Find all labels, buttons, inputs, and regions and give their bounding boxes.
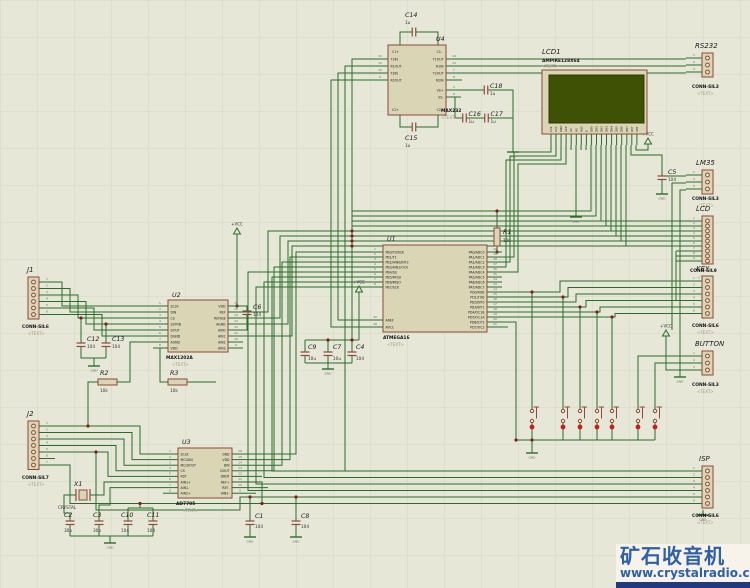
svg-text:8: 8: [169, 488, 171, 492]
svg-text:8: 8: [453, 75, 455, 79]
lcd-screen: [549, 75, 644, 123]
svg-text:R2: R2: [100, 370, 108, 377]
svg-text:CONN-SIL3: CONN-SIL3: [692, 196, 719, 202]
svg-text:8: 8: [693, 251, 695, 255]
connector-pin: [706, 354, 710, 358]
svg-text:10: 10: [238, 483, 242, 487]
svg-text:DGND: DGND: [171, 334, 181, 338]
svg-text:104: 104: [121, 528, 129, 533]
svg-text:C9: C9: [308, 344, 316, 351]
connector-pin: [706, 259, 710, 263]
svg-text:PD5/OC1A: PD5/OC1A: [468, 315, 485, 319]
svg-text:C13: C13: [112, 336, 124, 343]
resistor-body[interactable]: [168, 379, 187, 385]
svg-text:LCD1: LCD1: [542, 48, 561, 56]
connector-pin: [706, 239, 710, 243]
svg-text:6: 6: [159, 331, 161, 335]
svg-text:11: 11: [378, 54, 382, 58]
svg-text:AIN2-: AIN2-: [221, 492, 230, 496]
svg-text:E: E: [584, 130, 588, 132]
connector-pin: [706, 229, 710, 233]
connector-pin: [706, 312, 710, 316]
svg-text:J2: J2: [25, 410, 34, 418]
junction-dot: [495, 209, 498, 212]
svg-text:C5: C5: [668, 169, 676, 176]
svg-text:R3: R3: [170, 370, 178, 377]
svg-text:16: 16: [238, 449, 242, 453]
svg-text:C2+: C2+: [392, 108, 399, 112]
svg-text:ATMEGA16: ATMEGA16: [383, 335, 410, 341]
svg-text:9: 9: [379, 75, 381, 79]
svg-text:1: 1: [46, 277, 48, 281]
svg-text:AIN1+: AIN1+: [181, 480, 192, 484]
resistor-body[interactable]: [494, 228, 500, 246]
button-terminal: [530, 419, 533, 422]
svg-text:PD1/TXD: PD1/TXD: [470, 295, 485, 299]
connector-pin: [32, 444, 36, 448]
connector-pin: [32, 306, 36, 310]
button-terminal: [636, 419, 639, 422]
svg-text:MAX232: MAX232: [441, 108, 461, 114]
svg-text:7: 7: [453, 68, 455, 72]
svg-text:DB3: DB3: [605, 126, 609, 132]
button-junction-dot: [595, 425, 600, 430]
watermark: 矿石收音机 www.crystalradio.cn: [616, 544, 750, 588]
svg-text:30p: 30p: [93, 528, 101, 533]
svg-text:5: 5: [693, 302, 695, 306]
svg-text:<TEXT>: <TEXT>: [28, 482, 45, 487]
svg-text:1u: 1u: [491, 119, 497, 124]
svg-text:104: 104: [668, 177, 676, 182]
svg-text:C10: C10: [121, 512, 133, 519]
connector-pin: [706, 469, 710, 473]
svg-text:GND: GND: [677, 380, 685, 384]
svg-text:PB7/SCK: PB7/SCK: [386, 285, 400, 289]
svg-text:10: 10: [234, 337, 238, 341]
svg-text:RS232: RS232: [695, 42, 718, 50]
svg-text:R/W: R/W: [579, 126, 583, 132]
svg-text:C1-: C1-: [437, 50, 442, 54]
junction-dot: [94, 450, 97, 453]
svg-text:7: 7: [693, 246, 695, 250]
svg-text:C16: C16: [469, 111, 481, 118]
connector-pin: [32, 437, 36, 441]
svg-text:GND: GND: [222, 452, 230, 456]
svg-text:<TEXT>: <TEXT>: [697, 330, 714, 335]
connector-pin: [32, 313, 36, 317]
svg-text:4: 4: [693, 296, 695, 300]
svg-text:DIN: DIN: [171, 310, 177, 314]
svg-text:3: 3: [693, 365, 695, 369]
svg-text:MAX1202A: MAX1202A: [166, 355, 193, 361]
svg-text:1: 1: [693, 216, 695, 220]
svg-text:2: 2: [693, 221, 695, 225]
svg-text:AGND: AGND: [216, 322, 226, 326]
schematic: GNDGNDGNDGNDGNDGNDGNDGNDGNDGNDGND+VCC+VC…: [0, 0, 750, 588]
svg-text:6: 6: [169, 477, 171, 481]
svg-text:7: 7: [169, 483, 171, 487]
svg-text:4: 4: [46, 297, 48, 301]
svg-text:C8: C8: [301, 513, 309, 520]
button-junction-dot: [530, 425, 535, 430]
button-terminal: [610, 409, 613, 412]
svg-text:VCC: VCC: [564, 126, 568, 132]
junction-dot: [350, 239, 353, 242]
svg-text:2: 2: [693, 60, 695, 64]
svg-text:4: 4: [159, 319, 161, 323]
connector-pin: [706, 56, 710, 60]
svg-text:6: 6: [374, 272, 376, 276]
svg-text:RST: RST: [181, 475, 187, 479]
svg-text:14: 14: [493, 287, 497, 291]
svg-text:PA7/ADC7: PA7/ADC7: [469, 285, 485, 289]
svg-text:GND: GND: [529, 456, 537, 460]
svg-text:4: 4: [693, 486, 695, 490]
svg-text:10k: 10k: [503, 238, 511, 243]
svg-text:PB4/SS: PB4/SS: [386, 270, 397, 274]
svg-text:VDD: VDD: [171, 346, 179, 350]
svg-text:SCLK: SCLK: [171, 304, 180, 308]
svg-text:AIN0: AIN0: [218, 328, 226, 332]
svg-text:U4: U4: [436, 36, 445, 43]
svg-text:SCLK: SCLK: [181, 452, 190, 456]
svg-text:1: 1: [693, 170, 695, 174]
svg-text:7: 7: [374, 277, 376, 281]
svg-text:PA1/ADC1: PA1/ADC1: [469, 255, 485, 259]
crystal-body[interactable]: [79, 490, 87, 500]
svg-text:T1OUT: T1OUT: [432, 57, 444, 61]
svg-text:19: 19: [493, 312, 497, 316]
svg-text:KEY: KEY: [696, 265, 710, 273]
svg-text:VDD: VDD: [218, 304, 226, 308]
svg-text:PD2/INT0: PD2/INT0: [470, 300, 485, 304]
junction-dot: [350, 338, 353, 341]
connector-pin: [706, 187, 710, 191]
button-terminal: [595, 419, 598, 422]
connector-pin: [32, 431, 36, 435]
svg-text:PB6/MISO: PB6/MISO: [386, 280, 402, 284]
svg-text:R2IN: R2IN: [436, 78, 444, 82]
svg-text:6: 6: [46, 310, 48, 314]
junction-dot: [530, 438, 533, 441]
svg-text:15: 15: [493, 292, 497, 296]
schematic-canvas: GNDGNDGNDGNDGNDGNDGNDGNDGNDGNDGND+VCC+VC…: [0, 0, 750, 588]
svg-text:C1: C1: [255, 513, 263, 520]
svg-text:6: 6: [46, 454, 48, 458]
svg-text:REFADJ: REFADJ: [214, 316, 225, 320]
svg-text:DB5: DB5: [615, 126, 619, 132]
svg-text:17: 17: [493, 302, 497, 306]
svg-text:C17: C17: [491, 111, 503, 118]
svg-text:AIN2+: AIN2+: [181, 492, 192, 496]
svg-text:AREF: AREF: [386, 318, 394, 322]
svg-text:14: 14: [234, 313, 238, 317]
svg-text:6: 6: [453, 92, 455, 96]
svg-text:VDD: VDD: [222, 458, 230, 462]
svg-text:DB1: DB1: [595, 126, 599, 132]
svg-text:<TEXT>: <TEXT>: [697, 520, 714, 525]
svg-text:PA2/ADC2: PA2/ADC2: [469, 260, 485, 264]
svg-text:PB3/AIN1/OC0: PB3/AIN1/OC0: [386, 265, 409, 269]
button-terminal: [561, 419, 564, 422]
svg-text:DB0: DB0: [589, 126, 593, 132]
junction-dot: [86, 424, 89, 427]
svg-text:+VCC: +VCC: [231, 222, 243, 227]
svg-text:DIN: DIN: [224, 464, 230, 468]
svg-text:DRDY: DRDY: [221, 475, 230, 479]
junction-dot: [350, 244, 353, 247]
svg-text:CONN-SIL3: CONN-SIL3: [692, 84, 719, 90]
connector-pin: [32, 280, 36, 284]
svg-text:104: 104: [112, 344, 120, 349]
button-junction-dot: [636, 425, 641, 430]
svg-text:1: 1: [693, 276, 695, 280]
svg-text:7: 7: [46, 460, 48, 464]
button-terminal: [653, 409, 656, 412]
svg-text:RST: RST: [630, 126, 634, 132]
svg-text:<TEXT>: <TEXT>: [182, 508, 199, 513]
svg-text:3: 3: [46, 434, 48, 438]
svg-text:PB2/AIN0/INT2: PB2/AIN0/INT2: [386, 260, 409, 264]
junction-dot: [294, 495, 297, 498]
svg-text:39: 39: [493, 252, 497, 256]
svg-text:20: 20: [493, 317, 497, 321]
connector-pin: [706, 180, 710, 184]
svg-text:34: 34: [493, 277, 497, 281]
connector-pin: [706, 292, 710, 296]
svg-text:DOUT: DOUT: [171, 328, 180, 332]
svg-text:10u: 10u: [308, 356, 316, 361]
svg-text:AIN1: AIN1: [218, 334, 226, 338]
svg-text:1u: 1u: [405, 20, 411, 25]
svg-text:R2OUT: R2OUT: [391, 78, 402, 82]
svg-text:3: 3: [374, 257, 376, 261]
svg-text:LCD: LCD: [696, 205, 711, 213]
svg-text:2: 2: [159, 307, 161, 311]
svg-text:CS1: CS1: [549, 126, 553, 132]
watermark-url: www.crystalradio.cn: [616, 567, 750, 580]
button-junction-dot: [561, 425, 566, 430]
svg-text:C1+: C1+: [392, 50, 399, 54]
svg-text:GND: GND: [325, 372, 333, 376]
svg-text:GND: GND: [573, 220, 581, 224]
svg-text:4: 4: [169, 466, 171, 470]
svg-text:1u: 1u: [469, 119, 475, 124]
connector-pin: [706, 249, 710, 253]
svg-text:GND: GND: [659, 197, 667, 201]
svg-text:104: 104: [253, 312, 261, 317]
junction-dot: [561, 295, 564, 298]
svg-text:DOUT: DOUT: [220, 469, 229, 473]
svg-text:CS: CS: [181, 469, 185, 473]
svg-text:<TEXT>: <TEXT>: [387, 342, 404, 347]
svg-text:2: 2: [46, 428, 48, 432]
svg-text:PA4/ADC4: PA4/ADC4: [469, 270, 485, 274]
svg-text:+VCC: +VCC: [660, 324, 672, 329]
junction-dot: [350, 234, 353, 237]
svg-text:PD3/INT1: PD3/INT1: [470, 305, 485, 309]
junction-dot: [595, 310, 598, 313]
svg-text:V0: V0: [569, 128, 573, 132]
svg-text:1u: 1u: [490, 91, 496, 96]
svg-text:1: 1: [693, 466, 695, 470]
svg-text:<TEXT>: <TEXT>: [28, 331, 45, 336]
junction-dot: [350, 229, 353, 232]
junction-dot: [326, 338, 329, 341]
svg-text:PA0/ADC0: PA0/ADC0: [469, 250, 485, 254]
junction-dot: [248, 495, 251, 498]
svg-text:2: 2: [169, 455, 171, 459]
connector-pin: [706, 299, 710, 303]
svg-text:REF: REF: [219, 310, 225, 314]
connector-pin: [706, 254, 710, 258]
junction-dot: [104, 322, 107, 325]
svg-text:J1: J1: [25, 266, 34, 274]
svg-text:104: 104: [301, 524, 309, 529]
svg-text:104: 104: [356, 356, 364, 361]
svg-text:14: 14: [238, 460, 242, 464]
svg-text:RS: RS: [574, 128, 578, 132]
svg-text:X1: X1: [73, 481, 82, 488]
svg-text:C6: C6: [253, 304, 261, 311]
svg-text:5: 5: [693, 492, 695, 496]
button-terminal: [578, 419, 581, 422]
svg-text:2: 2: [693, 283, 695, 287]
junction-dot: [514, 438, 517, 441]
svg-text:3: 3: [693, 226, 695, 230]
svg-text:U1: U1: [387, 236, 396, 243]
svg-text:GND: GND: [559, 126, 563, 132]
svg-text:2: 2: [374, 252, 376, 256]
svg-text:U2: U2: [172, 292, 181, 299]
svg-text:REF-: REF-: [222, 486, 229, 490]
svg-text:GND: GND: [91, 369, 99, 373]
svg-text:R1OUT: R1OUT: [391, 64, 402, 68]
svg-text:CONN-SIL6: CONN-SIL6: [692, 323, 719, 329]
svg-text:12: 12: [238, 472, 242, 476]
button-junction-dot: [653, 425, 658, 430]
svg-text:32: 32: [373, 315, 377, 319]
connector-pin: [706, 244, 710, 248]
svg-text:C4: C4: [356, 344, 364, 351]
svg-text:2: 2: [693, 473, 695, 477]
svg-text:PD7/OC2: PD7/OC2: [470, 325, 484, 329]
svg-text:GND: GND: [510, 155, 518, 159]
svg-text:REF+: REF+: [221, 480, 230, 484]
svg-text:12: 12: [378, 61, 382, 65]
connector-pin: [706, 63, 710, 67]
svg-text:6: 6: [693, 241, 695, 245]
svg-text:U3: U3: [182, 439, 191, 446]
svg-text:12: 12: [234, 325, 238, 329]
connector-pin: [706, 173, 710, 177]
svg-text:BUTTON: BUTTON: [695, 340, 725, 348]
svg-text:2: 2: [453, 85, 455, 89]
svg-text:13: 13: [452, 61, 456, 65]
svg-text:SSTRB: SSTRB: [171, 322, 181, 326]
svg-text:R1IN: R1IN: [436, 64, 444, 68]
svg-text:10: 10: [378, 68, 382, 72]
button-terminal: [561, 409, 564, 412]
connector-pin: [32, 293, 36, 297]
svg-text:<TEXT>: <TEXT>: [697, 389, 714, 394]
svg-text:MCLKIN: MCLKIN: [181, 458, 194, 462]
connector-pin: [706, 368, 710, 372]
svg-text:1: 1: [374, 247, 376, 251]
svg-text:CONN-SIL7: CONN-SIL7: [22, 475, 49, 481]
svg-text:PA6/ADC6: PA6/ADC6: [469, 280, 485, 284]
svg-text:PD4/OC1B: PD4/OC1B: [468, 310, 484, 314]
svg-text:R1: R1: [503, 229, 511, 236]
svg-text:11: 11: [238, 477, 242, 481]
svg-text:+VCC: +VCC: [353, 280, 365, 285]
connector-pin: [706, 495, 710, 499]
svg-text:5: 5: [159, 325, 161, 329]
svg-text:C2-: C2-: [437, 108, 442, 112]
connector-pin: [32, 463, 36, 467]
svg-text:CONN-SIL6: CONN-SIL6: [692, 513, 719, 519]
svg-text:LM35: LM35: [696, 159, 715, 167]
svg-text:1: 1: [169, 449, 171, 453]
resistor-body[interactable]: [98, 379, 117, 385]
svg-text:37: 37: [493, 262, 497, 266]
svg-text:4: 4: [693, 231, 695, 235]
button-junction-dot: [578, 425, 583, 430]
svg-text:10k: 10k: [100, 388, 108, 393]
svg-text:AIN2: AIN2: [218, 340, 226, 344]
svg-text:PA3/ADC3: PA3/ADC3: [469, 265, 485, 269]
svg-text:<TEXT>: <TEXT>: [441, 115, 458, 120]
svg-text:8: 8: [159, 343, 161, 347]
svg-text:21: 21: [493, 322, 497, 326]
svg-text:3: 3: [159, 313, 161, 317]
svg-text:3: 3: [693, 479, 695, 483]
svg-text:10u: 10u: [333, 356, 341, 361]
svg-text:1: 1: [693, 351, 695, 355]
svg-text:PD0/RXD: PD0/RXD: [470, 290, 485, 294]
svg-text:DB2: DB2: [600, 126, 604, 132]
svg-text:VS+: VS+: [437, 88, 444, 92]
connector-pin: [706, 224, 710, 228]
svg-text:ISP: ISP: [699, 455, 711, 463]
connector-pin: [706, 286, 710, 290]
svg-text:1: 1: [159, 301, 161, 305]
svg-text:AD7705: AD7705: [176, 501, 195, 507]
svg-text:1u: 1u: [405, 143, 411, 148]
svg-text:GND: GND: [107, 546, 115, 550]
connector-pin: [32, 287, 36, 291]
svg-text:1: 1: [46, 421, 48, 425]
svg-text:2: 2: [46, 284, 48, 288]
watermark-bar: [616, 582, 750, 588]
svg-text:16: 16: [234, 301, 238, 305]
svg-text:38: 38: [493, 257, 497, 261]
svg-text:40: 40: [493, 247, 497, 251]
svg-text:13: 13: [238, 466, 242, 470]
svg-text:C18: C18: [490, 83, 502, 90]
chip-U1[interactable]: U1ATMEGA16<TEXT>1PB0/T0/XCK2PB1/T13PB2/A…: [368, 236, 502, 347]
connector-pin: [32, 424, 36, 428]
junction-dot: [260, 502, 263, 505]
button-terminal: [530, 409, 533, 412]
junction-dot: [530, 290, 533, 293]
svg-text:C15: C15: [405, 135, 417, 142]
button-terminal: [636, 409, 639, 412]
svg-text:9: 9: [693, 256, 695, 260]
svg-text:8: 8: [374, 282, 376, 286]
svg-text:16: 16: [493, 297, 497, 301]
svg-text:15: 15: [234, 307, 238, 311]
